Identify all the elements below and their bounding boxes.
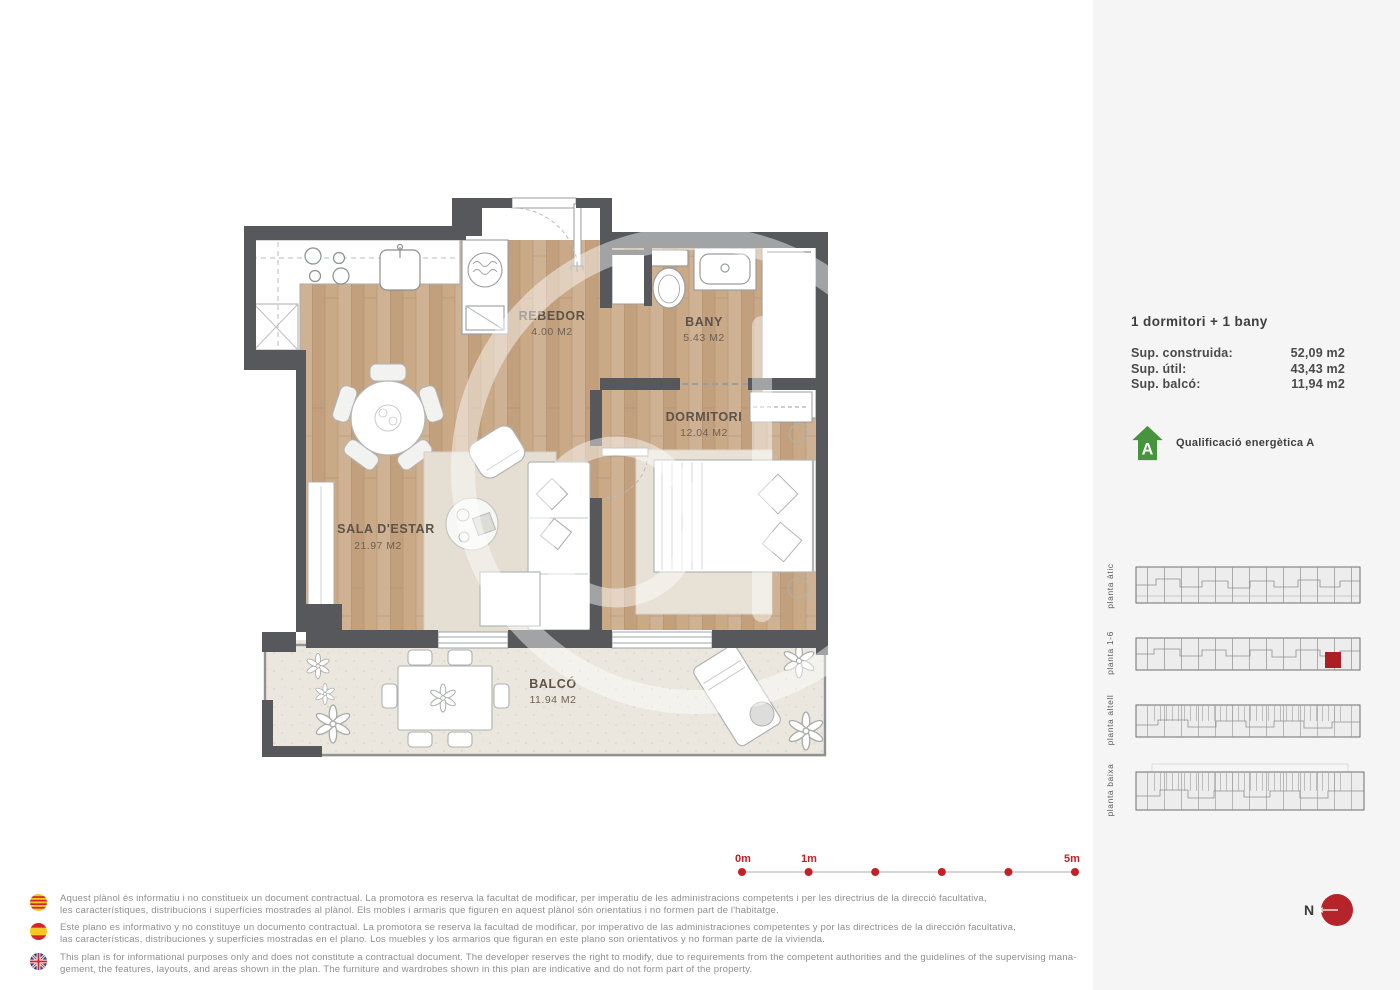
- svg-text:A: A: [1142, 440, 1154, 458]
- washing-machine-icon: [462, 240, 508, 334]
- floor-strip-altell[interactable]: [1136, 705, 1360, 737]
- floor-strip-1-6[interactable]: [1136, 638, 1360, 670]
- surface-row: Sup. balcó: 11,94 m2: [1131, 377, 1345, 393]
- surface-value: 43,43 m2: [1291, 362, 1345, 378]
- sink-icon: [380, 245, 420, 291]
- flag-spain-icon: [30, 923, 47, 940]
- disclaimer-line: Aquest plànol és informatiu i no constit…: [60, 893, 987, 905]
- floor-strip-baixa[interactable]: [1136, 764, 1364, 810]
- disclaimer-line: gement, the features, layouts, and areas…: [60, 964, 1077, 976]
- highlighted-unit[interactable]: [1325, 652, 1341, 668]
- scale-bar: 0m 1m 5m: [725, 848, 1090, 888]
- room-label-sala: SALA D'ESTAR: [337, 522, 435, 536]
- floor-label-baixa: planta baixa: [1105, 745, 1117, 835]
- flag-uk-icon: [30, 953, 47, 970]
- energy-house-icon: A: [1131, 424, 1164, 462]
- room-area-rebedor: 4.00 M2: [531, 326, 572, 338]
- room-area-dormitori: 12.04 M2: [680, 427, 728, 439]
- floor-plans-mini: [1130, 560, 1392, 820]
- disclaimer-spanish: Este plano es informativo y no constituy…: [30, 922, 1016, 945]
- flag-catalonia-icon: [30, 894, 47, 911]
- floor-plan: REBEDOR 4.00 M2 BANY 5.43 M2 DORMITORI 1…: [238, 190, 838, 765]
- compass: N: [1290, 885, 1370, 935]
- disclaimer-line: les característiques, distribucions i su…: [60, 905, 987, 917]
- room-label-dormitori: DORMITORI: [666, 410, 743, 424]
- room-area-balco: 11.94 M2: [530, 694, 577, 706]
- side-panel: [1093, 0, 1400, 990]
- scale-label-0m: 0m: [735, 853, 751, 865]
- energy-rating-label: Qualificació energètica A: [1176, 437, 1315, 449]
- compass-north-label: N: [1304, 902, 1314, 918]
- surface-row: Sup. construida: 52,09 m2: [1131, 346, 1345, 362]
- energy-rating: A Qualificació energètica A: [1131, 424, 1315, 462]
- surface-label: Sup. construida:: [1131, 346, 1233, 362]
- surface-table: Sup. construida: 52,09 m2 Sup. útil: 43,…: [1131, 346, 1345, 393]
- surface-row: Sup. útil: 43,43 m2: [1131, 362, 1345, 378]
- surface-label: Sup. útil:: [1131, 362, 1186, 378]
- surface-value: 52,09 m2: [1291, 346, 1345, 362]
- room-label-bany: BANY: [685, 315, 723, 329]
- scale-label-1m: 1m: [801, 853, 817, 865]
- surface-label: Sup. balcó:: [1131, 377, 1201, 393]
- disclaimer-line: Este plano es informativo y no constituy…: [60, 922, 1016, 934]
- disclaimer-english: This plan is for informational purposes …: [30, 952, 1077, 975]
- surface-value: 11,94 m2: [1291, 377, 1345, 393]
- scale-label-5m: 5m: [1064, 853, 1080, 865]
- disclaimer-catalan: Aquest plànol és informatiu i no constit…: [30, 893, 987, 916]
- floor-strip-atic[interactable]: [1136, 567, 1360, 603]
- disclaimer-line: This plan is for informational purposes …: [60, 952, 1077, 964]
- apartment-title: 1 dormitori + 1 bany: [1131, 314, 1268, 329]
- room-area-sala: 21.97 M2: [354, 540, 402, 552]
- page: REBEDOR 4.00 M2 BANY 5.43 M2 DORMITORI 1…: [0, 0, 1400, 990]
- disclaimer-line: las características, distribuciones y su…: [60, 934, 1016, 946]
- toilet-icon: [650, 250, 688, 308]
- room-area-bany: 5.43 M2: [683, 332, 724, 344]
